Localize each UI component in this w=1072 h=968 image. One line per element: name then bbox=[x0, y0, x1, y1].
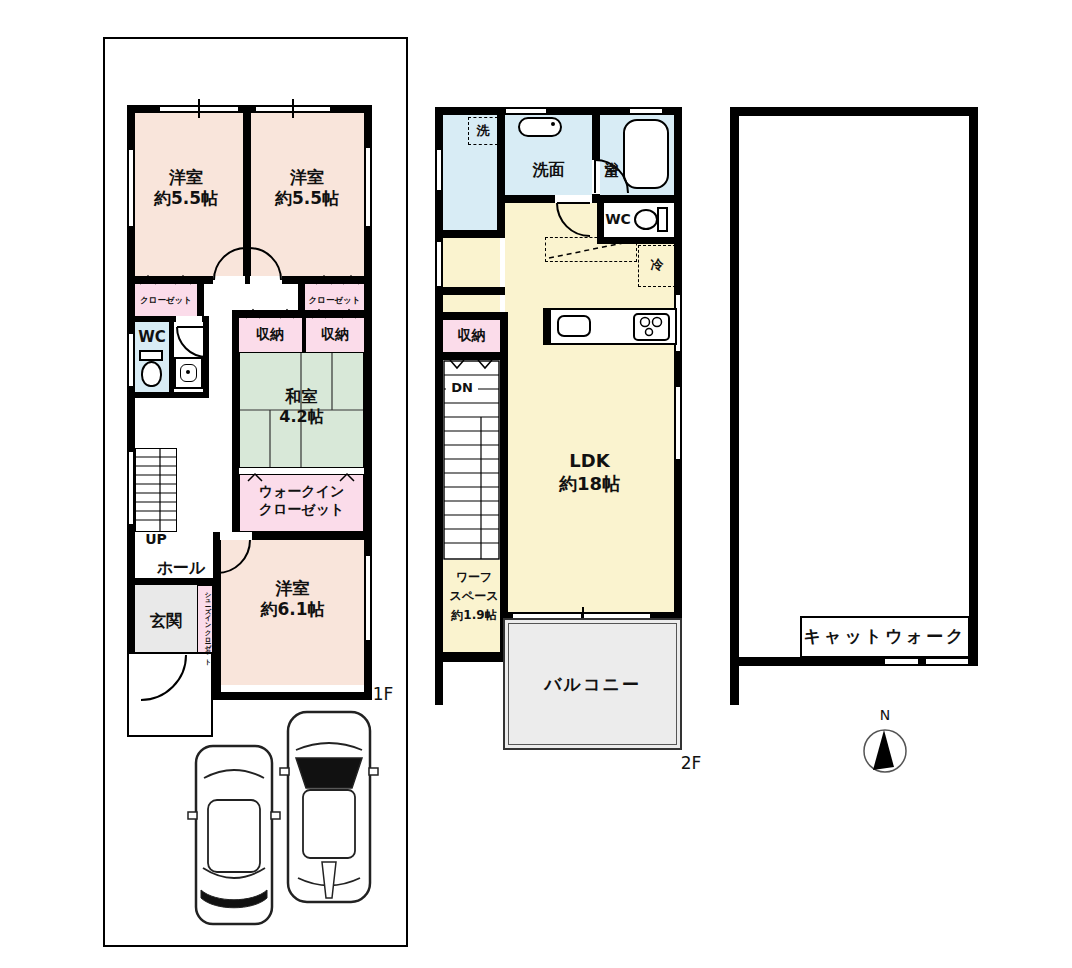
fridge-label: 冷 bbox=[638, 257, 676, 273]
window bbox=[436, 150, 442, 190]
window bbox=[630, 108, 662, 114]
balcony-label: バルコニー bbox=[503, 674, 682, 695]
room-size: 4.2帖 bbox=[279, 407, 323, 426]
bedroom-c-label: 洋室 約6.1帖 bbox=[221, 578, 364, 621]
entrance-porch bbox=[127, 652, 213, 737]
door-opening bbox=[250, 276, 282, 284]
bathroom-label: 浴室 bbox=[602, 122, 620, 180]
bedroom-a-label: 洋室 約5.5帖 bbox=[129, 167, 243, 210]
wall bbox=[197, 284, 204, 316]
room-size: 約6.1帖 bbox=[260, 599, 324, 619]
room-name: 洋室 bbox=[276, 578, 310, 598]
toilet-1f-tank bbox=[139, 350, 163, 361]
window-tick bbox=[292, 99, 294, 118]
room-name: ワーフ bbox=[456, 570, 493, 584]
window-tick bbox=[198, 99, 200, 118]
room-name: 洋室 bbox=[290, 167, 324, 187]
door-opening bbox=[592, 160, 600, 194]
stove bbox=[633, 313, 670, 341]
window bbox=[436, 242, 442, 286]
room-size: 約5.5帖 bbox=[275, 188, 339, 208]
wall bbox=[443, 230, 505, 238]
door-opening bbox=[176, 316, 202, 322]
toilet-2f-bowl bbox=[634, 209, 658, 230]
window bbox=[365, 148, 371, 226]
laundry-label: 洗 bbox=[468, 123, 498, 139]
genkan-label: 玄関 bbox=[135, 611, 197, 631]
door-opening bbox=[213, 276, 245, 284]
kitchen-counter-end bbox=[543, 308, 551, 345]
wall bbox=[443, 287, 505, 295]
wall bbox=[674, 107, 682, 663]
shoes-closet-label: シューズインクローゼット bbox=[198, 588, 212, 654]
room-name2: スペース bbox=[450, 589, 499, 603]
room-size: 約5.5帖 bbox=[154, 188, 218, 208]
hall-label: ホール bbox=[145, 558, 217, 578]
door-opening bbox=[220, 532, 252, 540]
wall bbox=[213, 532, 221, 692]
room-name: ウォークイン bbox=[259, 483, 345, 499]
wall bbox=[443, 312, 500, 320]
wc-1f-label: WC bbox=[135, 328, 169, 347]
kitchen-sink bbox=[557, 315, 591, 337]
staircase-1f bbox=[135, 448, 177, 532]
wall bbox=[730, 107, 739, 705]
room-name2: クローゼット bbox=[259, 501, 345, 517]
window bbox=[506, 108, 546, 114]
wc-2f-label: WC bbox=[602, 211, 634, 229]
ldk-label: LDK 約18帖 bbox=[505, 450, 674, 495]
wall bbox=[730, 107, 978, 116]
floor2-label: 2F bbox=[674, 753, 708, 774]
room-size: 約1.9帖 bbox=[451, 608, 496, 622]
wall bbox=[505, 195, 682, 203]
wall bbox=[238, 310, 364, 318]
work-space-label: ワーフ スペース 約1.9帖 bbox=[443, 568, 505, 626]
stairs-down-label: DN bbox=[446, 380, 478, 396]
window bbox=[885, 658, 918, 665]
floor-plan-canvas: 洋室 約5.5帖 洋室 約5.5帖 クローゼット クローゼット WC 収納 収納… bbox=[0, 0, 1072, 968]
room-name: 和室 bbox=[286, 387, 318, 406]
toilet-1f-bowl bbox=[141, 361, 162, 387]
washroom-label: 洗面 bbox=[505, 160, 592, 180]
walkin-closet-label: ウォークイン クローゼット bbox=[239, 483, 364, 518]
storage-2f-label: 収納 bbox=[443, 327, 500, 345]
catwalk-label: キャットウォーク bbox=[800, 626, 970, 647]
window bbox=[128, 334, 134, 386]
compass-icon bbox=[864, 730, 906, 772]
closet-b-label: クローゼット bbox=[305, 295, 364, 306]
bathtub bbox=[623, 119, 669, 189]
closet-a-label: クローゼット bbox=[135, 295, 197, 306]
room-name: 洋室 bbox=[169, 167, 203, 187]
stairs-up-label: UP bbox=[138, 531, 174, 549]
floor1-label: 1F bbox=[366, 684, 400, 705]
wall bbox=[500, 312, 508, 360]
window bbox=[128, 452, 134, 524]
room-name: LDK bbox=[569, 450, 609, 471]
wall bbox=[203, 316, 209, 398]
toilet-2f-tank bbox=[657, 207, 668, 232]
overhead-cabinet-dashed bbox=[545, 237, 637, 262]
washbasin-2f bbox=[518, 117, 562, 137]
washitsu-label: 和室 4.2帖 bbox=[239, 387, 364, 427]
door-opening bbox=[555, 195, 592, 203]
wall bbox=[443, 352, 500, 360]
wall bbox=[969, 107, 978, 663]
washbasin-1f-bowl bbox=[180, 364, 197, 382]
wall bbox=[127, 392, 209, 398]
wall bbox=[435, 107, 443, 705]
window bbox=[926, 658, 968, 665]
storage-a-label: 収納 bbox=[238, 326, 302, 344]
wall bbox=[435, 652, 510, 662]
window bbox=[365, 556, 371, 640]
storage-b-label: 収納 bbox=[306, 326, 364, 344]
compass-north-label: N bbox=[869, 707, 901, 725]
wall bbox=[497, 115, 505, 235]
wall bbox=[127, 578, 215, 585]
bedroom-b-label: 洋室 約5.5帖 bbox=[250, 167, 364, 210]
room-size: 約18帖 bbox=[559, 473, 620, 494]
window bbox=[675, 387, 681, 459]
